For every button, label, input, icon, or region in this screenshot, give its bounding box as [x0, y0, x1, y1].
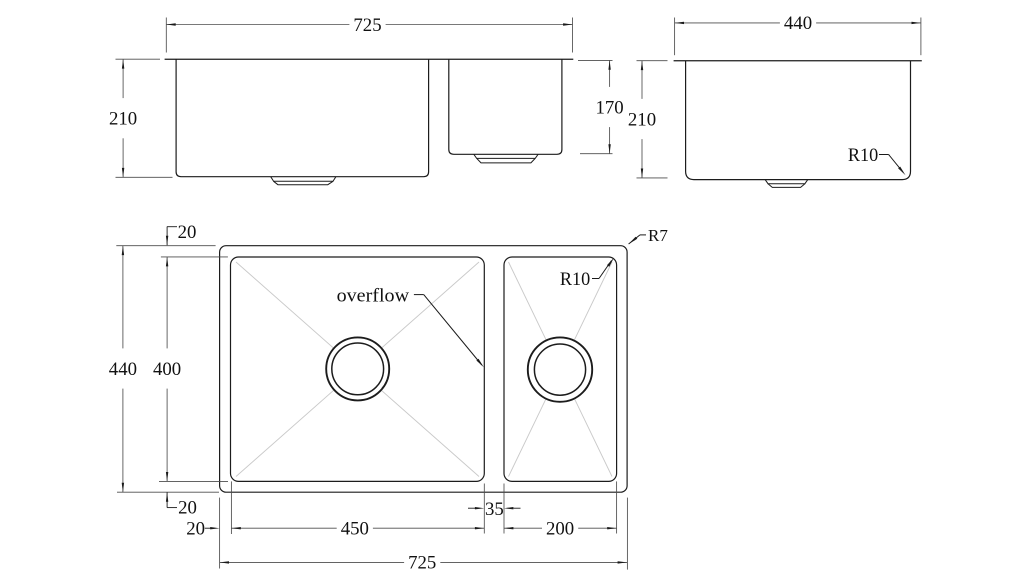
svg-text:20: 20 [186, 519, 205, 540]
svg-text:20: 20 [178, 222, 197, 243]
svg-text:725: 725 [408, 553, 436, 574]
svg-text:R7: R7 [648, 226, 668, 245]
svg-text:R10: R10 [848, 145, 878, 166]
svg-text:20: 20 [178, 498, 197, 519]
svg-text:210: 210 [628, 109, 656, 130]
svg-text:200: 200 [546, 519, 574, 540]
svg-text:440: 440 [784, 13, 812, 34]
svg-text:R10: R10 [560, 269, 590, 290]
svg-text:35: 35 [485, 499, 504, 520]
svg-text:450: 450 [341, 519, 369, 540]
svg-text:725: 725 [353, 15, 381, 36]
svg-text:400: 400 [153, 359, 181, 380]
svg-text:440: 440 [109, 359, 137, 380]
svg-text:170: 170 [596, 97, 624, 118]
svg-text:overflow: overflow [337, 285, 410, 306]
svg-text:210: 210 [109, 109, 137, 130]
